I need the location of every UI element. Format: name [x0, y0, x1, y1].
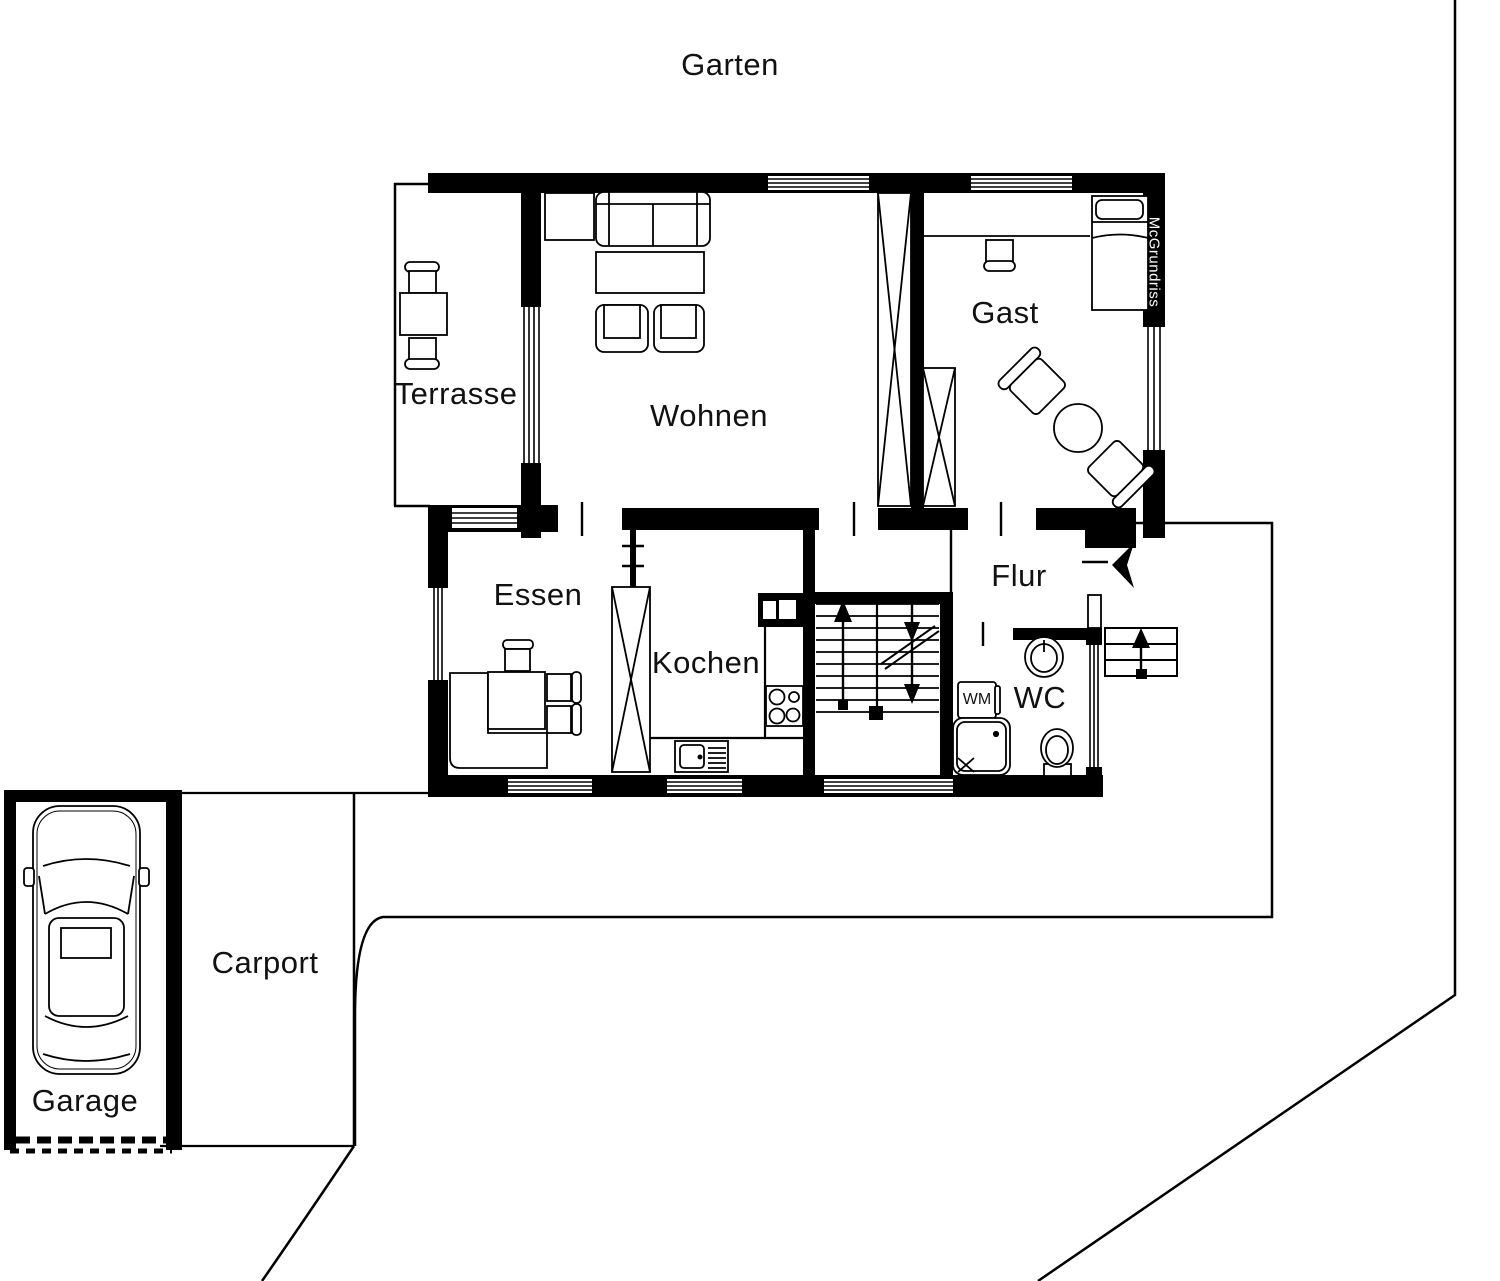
entry-steps-icon — [1105, 628, 1177, 679]
shower-icon — [953, 718, 1010, 775]
terrace-chair-icon — [405, 338, 439, 369]
armchair-icon — [654, 305, 704, 352]
label-wc: WC — [1014, 680, 1067, 716]
gast-furniture — [923, 196, 1157, 510]
label-essen: Essen — [494, 577, 583, 613]
label-gast: Gast — [971, 295, 1038, 331]
floorplan-drawing — [0, 0, 1500, 1281]
label-garage: Garage — [32, 1083, 138, 1119]
wohnen-furniture — [545, 192, 710, 352]
stove-icon — [766, 686, 803, 726]
driveway-curve — [262, 1146, 354, 1281]
label-kochen: Kochen — [652, 645, 760, 681]
stair-up-arrow-icon — [834, 600, 852, 710]
floorplan-canvas: Garten Terrasse Wohnen Gast Essen Kochen… — [0, 0, 1500, 1281]
bed-icon — [1092, 196, 1148, 310]
kitchen-unit-insets — [763, 600, 796, 619]
entrance-arrow-icon — [1112, 543, 1134, 588]
dining-chair-icon — [503, 640, 533, 671]
dining-chair-icon — [547, 704, 581, 735]
sideboard-icon — [545, 193, 594, 240]
staircase — [816, 596, 939, 720]
car-icon — [24, 806, 149, 1074]
dining-table-icon — [488, 672, 545, 729]
sink-icon — [675, 741, 728, 772]
round-table-icon — [1054, 404, 1102, 452]
label-terrasse: Terrasse — [395, 376, 518, 412]
entrance-door-leaf — [1088, 595, 1101, 628]
label-wohnen: Wohnen — [650, 398, 768, 434]
terrace-chair-icon — [405, 262, 439, 293]
essen-furniture — [450, 640, 581, 768]
armchair-icon — [996, 345, 1070, 419]
coffee-table-icon — [596, 252, 704, 293]
terrace-furniture — [400, 262, 447, 369]
label-washing-machine: WM — [963, 691, 991, 709]
label-carport: Carport — [212, 945, 319, 981]
shaft-kochen-icon — [612, 587, 650, 772]
dining-chair-icon — [547, 672, 581, 703]
desk-chair-icon — [984, 240, 1015, 271]
toilet-icon — [1041, 729, 1073, 776]
stair-newel — [869, 706, 883, 720]
washbasin-icon — [1025, 637, 1063, 677]
armchair-icon — [596, 305, 648, 352]
terrace-table-icon — [400, 293, 447, 335]
shaft-gast-icon — [923, 368, 955, 506]
sofa-icon — [596, 192, 710, 246]
watermark-mcgrundriss: McGrundriss — [1146, 217, 1163, 308]
label-garten: Garten — [681, 47, 779, 83]
label-flur: Flur — [991, 558, 1046, 594]
shaft-wohnen-icon — [878, 193, 911, 506]
